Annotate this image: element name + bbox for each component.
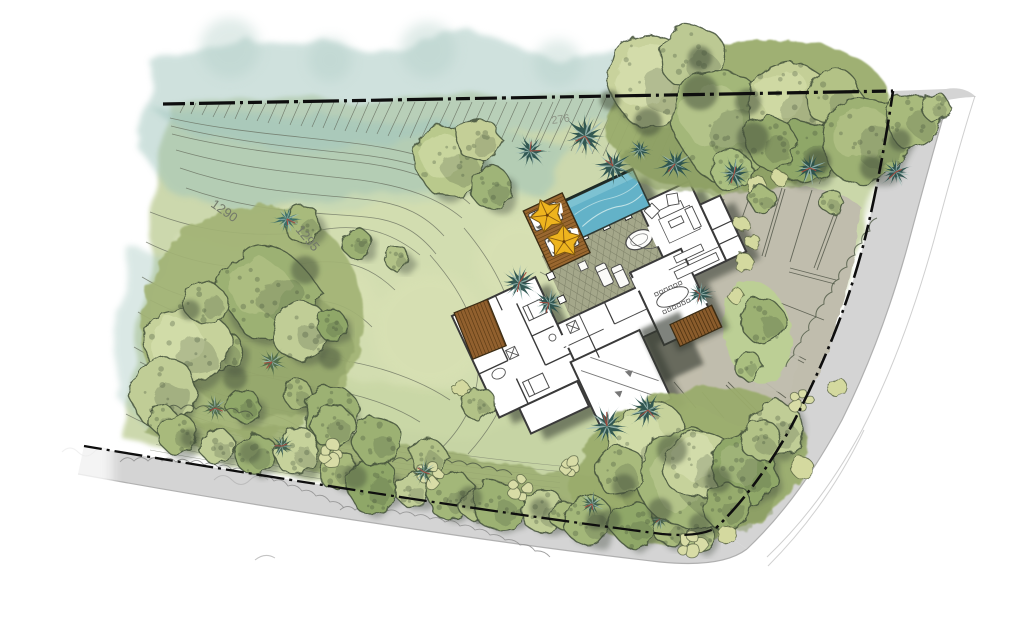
svg-text:276: 276	[551, 113, 571, 127]
